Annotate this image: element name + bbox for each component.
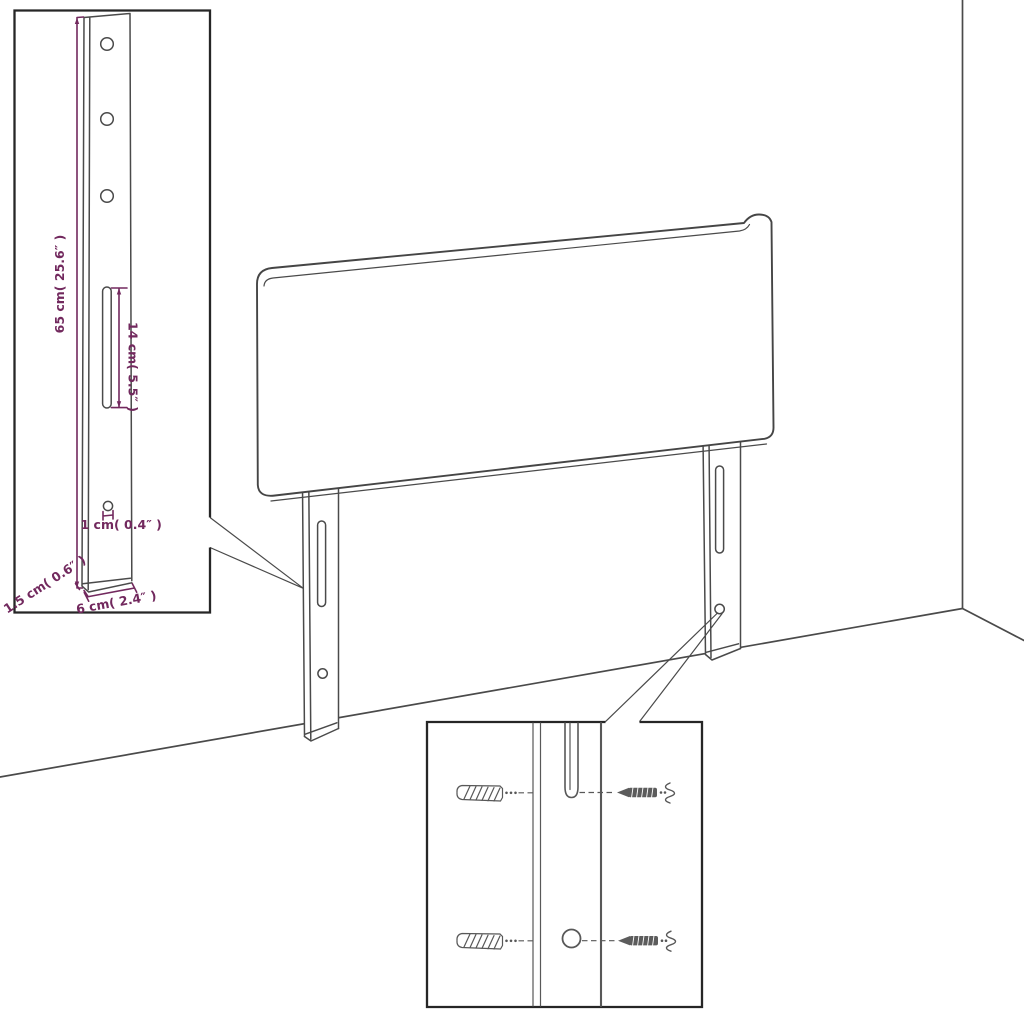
dot: [514, 792, 517, 795]
floor-line-right: [963, 609, 1024, 641]
dot: [660, 791, 663, 794]
dot: [505, 792, 508, 795]
dot: [510, 940, 513, 943]
right-leg: [703, 437, 741, 660]
dot: [665, 939, 668, 942]
dim-label-height: 65 cm( 25.6″ ): [52, 235, 67, 334]
dot: [510, 792, 513, 795]
mounting-detail-inset: [427, 722, 702, 1007]
left-leg-body: [303, 486, 339, 741]
dot: [505, 940, 508, 943]
dot: [514, 940, 517, 943]
bracket-callout-leaders: [210, 518, 303, 589]
dot: [664, 791, 667, 794]
bracket-detail-inset: 65 cm( 25.6″ ) 14 cm( 5.5″ ) 1 cm( 0.4″ …: [1, 11, 210, 617]
dim-label-hole: 1 cm( 0.4″ ): [81, 517, 162, 532]
headboard: [257, 215, 774, 502]
headboard-panel: [257, 215, 774, 496]
assembly-diagram: 65 cm( 25.6″ ) 14 cm( 5.5″ ) 1 cm( 0.4″ …: [0, 0, 1024, 1024]
dot: [661, 939, 664, 942]
left-leg: [303, 486, 339, 741]
dim-label-slot: 14 cm( 5.5″ ): [126, 322, 141, 412]
leader-lines-left-inset: [210, 518, 303, 589]
